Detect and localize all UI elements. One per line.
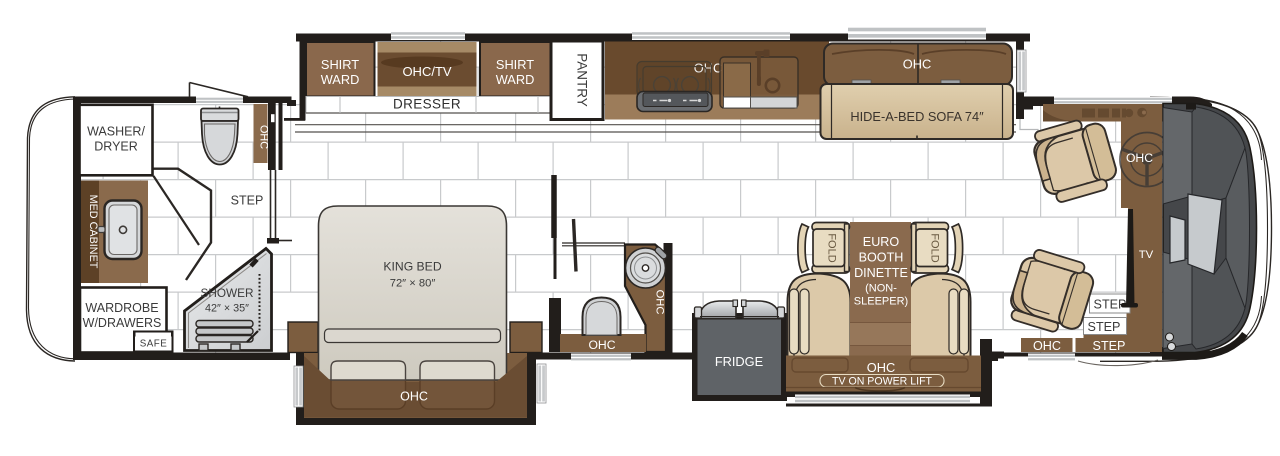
- svg-text:EURO: EURO: [863, 235, 900, 249]
- svg-text:TV ON POWER LIFT: TV ON POWER LIFT: [832, 376, 933, 388]
- svg-text:WARDROBE: WARDROBE: [85, 301, 158, 315]
- svg-text:OHC: OHC: [588, 338, 615, 352]
- svg-text:KING BED: KING BED: [383, 260, 441, 274]
- svg-text:OHC: OHC: [1126, 151, 1153, 165]
- svg-text:WARD: WARD: [321, 72, 360, 87]
- svg-text:STEP: STEP: [1093, 339, 1126, 353]
- svg-text:SHIRT: SHIRT: [496, 57, 534, 72]
- svg-text:OHC: OHC: [903, 57, 931, 72]
- svg-text:OHC: OHC: [258, 125, 270, 149]
- svg-text:OHC: OHC: [400, 390, 428, 404]
- svg-text:DINETTE: DINETTE: [854, 266, 908, 280]
- svg-text:DRYER: DRYER: [94, 140, 138, 154]
- svg-text:72″ × 80″: 72″ × 80″: [390, 278, 436, 290]
- svg-text:OHC: OHC: [1033, 339, 1061, 353]
- svg-text:FOLD: FOLD: [826, 233, 838, 262]
- svg-text:STEP: STEP: [1088, 320, 1121, 334]
- svg-text:PANTRY: PANTRY: [575, 53, 590, 107]
- svg-text:WASHER/: WASHER/: [87, 125, 145, 139]
- svg-text:FOLD: FOLD: [929, 233, 941, 262]
- svg-text:W/DRAWERS: W/DRAWERS: [83, 316, 162, 330]
- svg-text:SAFE: SAFE: [140, 339, 168, 350]
- svg-text:SHIRT: SHIRT: [321, 57, 359, 72]
- svg-text:OHC: OHC: [654, 290, 666, 315]
- svg-text:STEP: STEP: [231, 194, 264, 208]
- svg-text:TV: TV: [1139, 249, 1154, 261]
- svg-text:SHOWER: SHOWER: [200, 286, 253, 300]
- svg-text:BOOTH: BOOTH: [859, 251, 904, 265]
- svg-text:(NON-: (NON-: [865, 283, 897, 295]
- svg-text:42″ × 35″: 42″ × 35″: [205, 303, 249, 315]
- svg-text:SLEEPER): SLEEPER): [854, 296, 908, 308]
- svg-text:OHC: OHC: [867, 360, 895, 375]
- svg-text:WARD: WARD: [496, 72, 535, 87]
- svg-text:MED CABINET: MED CABINET: [87, 195, 99, 269]
- svg-text:DRESSER: DRESSER: [393, 97, 461, 112]
- svg-text:OHC/TV: OHC/TV: [402, 64, 451, 79]
- svg-text:FRIDGE: FRIDGE: [715, 354, 763, 369]
- svg-text:HIDE-A-BED SOFA 74″: HIDE-A-BED SOFA 74″: [850, 109, 984, 124]
